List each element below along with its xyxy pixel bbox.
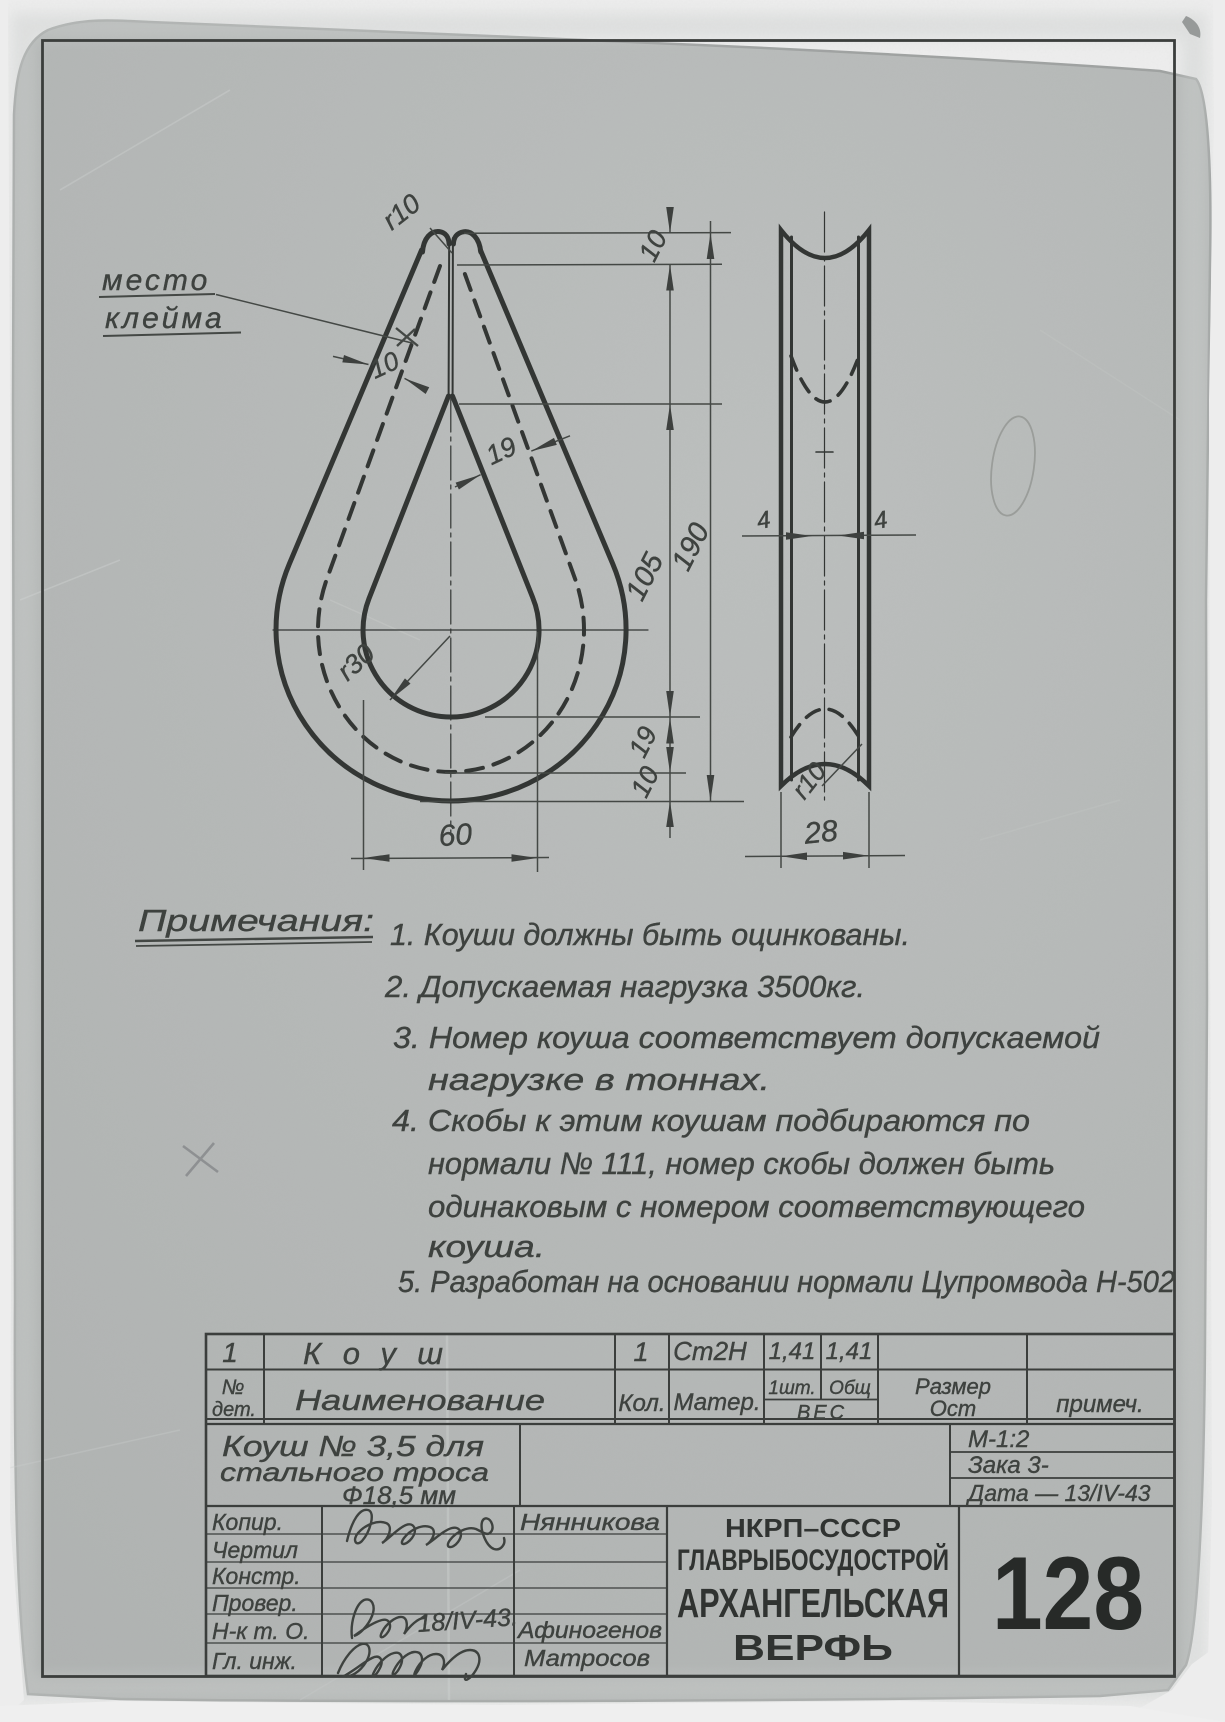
svg-text:1. Коуши должны быть оцинкован: 1. Коуши должны быть оцинкованы. — [390, 917, 910, 952]
svg-text:Чертил: Чертил — [212, 1537, 298, 1563]
svg-text:нормали № 111, номер скобы дол: нормали № 111, номер скобы должен быть — [428, 1146, 1055, 1181]
svg-text:ВЕС: ВЕС — [797, 1402, 847, 1424]
svg-text:Зака 3-: Зака 3- — [968, 1452, 1049, 1479]
svg-text:одинаковым с номером соответст: одинаковым с номером соответствующего — [428, 1189, 1085, 1224]
svg-text:коуша.: коуша. — [428, 1229, 545, 1264]
svg-text:Наименование: Наименование — [295, 1385, 545, 1417]
svg-text:Афиногенов: Афиногенов — [516, 1617, 662, 1643]
svg-text:1: 1 — [633, 1337, 648, 1367]
svg-text:5. Разработан на основании нор: 5. Разработан на основании нормали Цупро… — [398, 1264, 1175, 1299]
svg-text:нагрузке в тоннах.: нагрузке в тоннах. — [428, 1062, 770, 1097]
svg-text:Ст2Н: Ст2Н — [673, 1336, 747, 1366]
svg-text:28: 28 — [802, 814, 840, 850]
svg-text:М-1:2: М-1:2 — [968, 1426, 1029, 1453]
svg-text:№: № — [222, 1376, 245, 1399]
svg-text:место: место — [102, 264, 210, 297]
svg-text:Констр.: Констр. — [212, 1563, 301, 1589]
svg-text:2. Допускаемая нагрузка 3500кг: 2. Допускаемая нагрузка 3500кг. — [384, 969, 865, 1004]
svg-text:Копир.: Копир. — [212, 1509, 283, 1535]
svg-text:Ост: Ост — [930, 1396, 976, 1421]
svg-text:1,41: 1,41 — [769, 1338, 816, 1365]
svg-text:1шт.: 1шт. — [768, 1378, 815, 1399]
svg-text:1: 1 — [222, 1337, 238, 1368]
svg-text:Провер.: Провер. — [212, 1590, 298, 1616]
svg-text:НКРП–СССР: НКРП–СССР — [725, 1513, 901, 1543]
svg-text:ГЛАВРЫБОСУДОСТРОЙ: ГЛАВРЫБОСУДОСТРОЙ — [677, 1543, 949, 1577]
svg-text:1,41: 1,41 — [826, 1338, 873, 1365]
svg-text:60: 60 — [438, 818, 474, 853]
svg-text:Кол.: Кол. — [618, 1390, 665, 1417]
svg-text:АРХАНГЕЛЬСКАЯ: АРХАНГЕЛЬСКАЯ — [677, 1580, 949, 1626]
svg-text:Гл. инж.: Гл. инж. — [212, 1648, 297, 1674]
svg-text:Общ: Общ — [829, 1378, 871, 1399]
svg-text:Ф18,5 мм: Ф18,5 мм — [342, 1482, 456, 1510]
svg-text:Дата — 13/IV-43: Дата — 13/IV-43 — [965, 1480, 1151, 1506]
svg-text:Нянникова: Нянникова — [520, 1509, 660, 1535]
svg-text:Примечания:: Примечания: — [138, 903, 374, 938]
svg-text:Матросов: Матросов — [524, 1645, 650, 1671]
svg-text:Матер.: Матер. — [674, 1389, 761, 1416]
svg-text:примеч.: примеч. — [1056, 1391, 1143, 1418]
svg-text:клейма: клейма — [105, 302, 225, 335]
svg-text:Н-к т. О.: Н-к т. О. — [212, 1618, 309, 1644]
svg-text:3. Номер коуша соответствует д: 3. Номер коуша соответствует допускаемой — [393, 1020, 1100, 1055]
svg-text:128: 128 — [992, 1536, 1144, 1652]
svg-text:ВЕРФЬ: ВЕРФЬ — [733, 1627, 893, 1668]
svg-text:дет.: дет. — [212, 1399, 256, 1421]
svg-text:4. Скобы к этим коушам подбира: 4. Скобы к этим коушам подбираются по — [392, 1103, 1030, 1138]
